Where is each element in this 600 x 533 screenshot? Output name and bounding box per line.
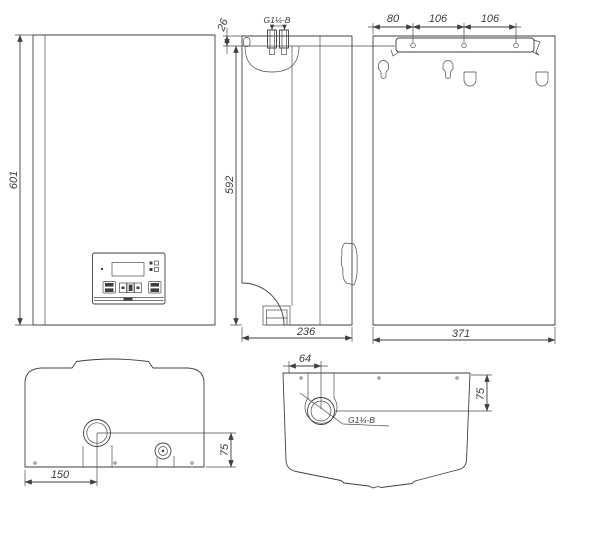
indicator-icons <box>150 261 159 272</box>
screw-hole <box>34 462 36 464</box>
side-bottom-corner-arc <box>242 36 284 325</box>
elbow-box <box>263 306 290 325</box>
dim-label-offset-x: 150 <box>51 469 70 481</box>
dim-label-106a: 106 <box>429 13 448 25</box>
indicator-icon <box>150 268 153 271</box>
dim-label-depth: 236 <box>296 326 316 338</box>
dim-label-offset-y: 75 <box>219 443 231 456</box>
pipe-stub <box>280 30 289 48</box>
updown-glyph <box>129 285 133 292</box>
screw-hole <box>456 377 458 379</box>
front-body-outline <box>33 35 215 325</box>
keyhole-slot-round <box>536 72 548 86</box>
pipe-stub-neck <box>282 48 287 55</box>
keyhole-slot-narrow <box>379 61 389 79</box>
dimension-236: 236 <box>242 326 352 342</box>
rail-bar <box>396 38 534 52</box>
rail-hole <box>411 43 416 48</box>
plus-glyph <box>137 287 140 290</box>
control-panel <box>93 253 166 304</box>
rail-left-hook <box>391 50 399 56</box>
screw-hole <box>378 377 380 379</box>
screw-hole <box>300 377 302 379</box>
button-glyph <box>151 283 160 287</box>
back-view: 80 106 106 371 <box>368 13 555 344</box>
dim-label-height: 601 <box>8 171 20 189</box>
indicator-icon <box>150 262 153 265</box>
drain-port-center <box>162 450 164 452</box>
keyhole-slot-round <box>464 72 476 86</box>
dimension-chain-top: 80 106 106 <box>368 13 521 43</box>
dimension-592: 592 <box>224 46 242 325</box>
bottom-outline <box>25 359 204 467</box>
indicator-icon <box>155 268 159 272</box>
button-glyph <box>105 283 114 287</box>
indicator-icon <box>155 261 159 265</box>
bottom-elbow-detail <box>263 306 290 325</box>
minus-glyph <box>122 287 125 290</box>
dim-label-106b: 106 <box>481 13 500 25</box>
rail-hole <box>514 43 519 48</box>
keyhole-slots <box>379 61 549 87</box>
keyhole-slot-narrow <box>443 61 453 79</box>
dimension-371: 371 <box>373 327 555 344</box>
dim-label-offset-x: 64 <box>299 353 311 365</box>
display-screen <box>112 263 144 277</box>
hook-tab <box>244 38 251 47</box>
pipe-stub-neck <box>270 48 275 55</box>
connection-label: G1¼-B <box>264 15 291 25</box>
side-view: G1¼-B 26 592 <box>215 15 395 342</box>
dim-label-height: 592 <box>224 176 236 194</box>
dim-label-offset-y: 75 <box>475 387 487 400</box>
top-view: G1¼-B 64 75 <box>283 353 492 488</box>
button-glyph <box>151 288 160 292</box>
status-led <box>101 268 103 270</box>
dimension-75-bottom: 75 <box>97 433 236 467</box>
panel-slot-mark <box>124 298 133 301</box>
boiler-dimension-drawing: 601 G1¼-B <box>0 0 600 533</box>
dimension-601: 601 <box>8 35 33 325</box>
panel-button-group-center <box>120 283 142 293</box>
panel-button-right <box>149 282 162 294</box>
front-view: 601 <box>8 35 215 325</box>
bottom-view: 150 75 <box>25 359 236 486</box>
pipe-stub <box>268 30 277 48</box>
connection-label: G1¼-B <box>348 415 375 425</box>
connection-callout-top: G1¼-B <box>264 15 291 30</box>
dim-label-offset: 26 <box>215 16 231 33</box>
screw-hole <box>114 462 116 464</box>
dim-label-width: 371 <box>452 328 470 340</box>
screw-hole <box>191 462 193 464</box>
rail-hole <box>462 43 467 48</box>
control-panel-frame <box>93 253 166 304</box>
side-clip-detail <box>341 243 357 285</box>
detail-arc <box>245 46 299 72</box>
dim-label-80: 80 <box>387 13 400 25</box>
panel-button-left <box>103 282 116 294</box>
button-glyph <box>105 288 114 292</box>
drawing-canvas: 601 G1¼-B <box>0 0 600 533</box>
top-outline <box>283 373 470 488</box>
side-body-outline <box>242 36 352 325</box>
dimension-64: 64 <box>283 353 328 409</box>
